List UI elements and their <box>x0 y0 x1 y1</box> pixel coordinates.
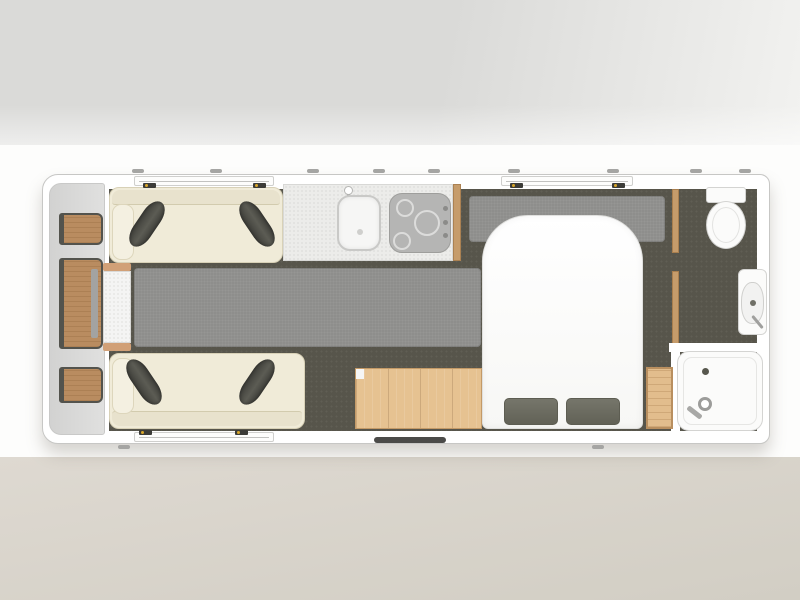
rail-mark <box>508 169 520 173</box>
chest-wood-trim <box>103 343 131 351</box>
bed-pillow <box>504 398 558 425</box>
window-latch-icon <box>253 183 266 188</box>
shower-drain-icon <box>702 368 709 375</box>
washbasin-drain-icon <box>750 300 756 306</box>
shower-tray <box>677 351 763 431</box>
caravan-floorplan <box>42 174 770 444</box>
seat-cushion <box>234 355 280 409</box>
background-band-bottom <box>0 457 800 600</box>
washbasin <box>738 269 767 335</box>
front-shelf-middle <box>59 258 103 349</box>
entrance-door <box>374 437 446 443</box>
bed-pillow <box>566 398 620 425</box>
occasional-chest <box>103 271 131 343</box>
lounge-sofa-top <box>109 187 283 263</box>
rail-mark <box>428 169 440 173</box>
hob-burner-large <box>414 210 440 236</box>
rail-mark <box>307 169 319 173</box>
rail-mark <box>592 445 604 449</box>
island-bed <box>482 215 643 429</box>
background-band-top <box>0 0 800 145</box>
wardrobe <box>355 368 482 429</box>
shelf-rail <box>91 269 98 338</box>
rail-mark <box>690 169 702 173</box>
carpet-runner-main <box>134 268 481 347</box>
worktop-wood-edge <box>453 184 461 261</box>
window-latch-icon <box>139 430 152 435</box>
hob-knob-icon <box>443 206 448 211</box>
rail-mark <box>210 169 222 173</box>
bathroom-partition-wood <box>672 271 679 346</box>
rail-mark <box>132 169 144 173</box>
rail-mark <box>373 169 385 173</box>
rail-mark <box>739 169 751 173</box>
window-lounge-bottom <box>134 432 274 442</box>
bathroom-partition-wood <box>672 189 679 253</box>
hob-burner-small <box>393 232 411 250</box>
window-lounge-top <box>134 176 274 186</box>
sofa-backrest <box>112 411 302 426</box>
window-latch-icon <box>612 183 625 188</box>
chest-wood-trim <box>103 263 131 271</box>
kitchen-sink <box>337 195 381 251</box>
window-bedroom-top <box>501 176 633 186</box>
hob-knob-icon <box>443 220 448 225</box>
sink-drain-icon <box>357 229 363 235</box>
window-latch-icon <box>510 183 523 188</box>
window-latch-icon <box>235 430 248 435</box>
rail-mark <box>118 445 130 449</box>
hob-burner-small <box>396 199 414 217</box>
front-shelf-top <box>59 213 103 245</box>
kitchen-hob <box>389 193 451 253</box>
shower-mixer-icon <box>698 397 712 411</box>
bedside-cabinet <box>646 367 673 429</box>
lounge-sofa-bottom <box>109 353 305 429</box>
sofa-backrest <box>112 190 280 205</box>
rail-mark <box>607 169 619 173</box>
wardrobe-door-notch <box>356 369 364 379</box>
front-shelf-bottom <box>59 367 103 403</box>
window-latch-icon <box>143 183 156 188</box>
hob-knob-icon <box>443 233 448 238</box>
toilet <box>706 201 746 249</box>
sink-tap-icon <box>344 186 353 195</box>
